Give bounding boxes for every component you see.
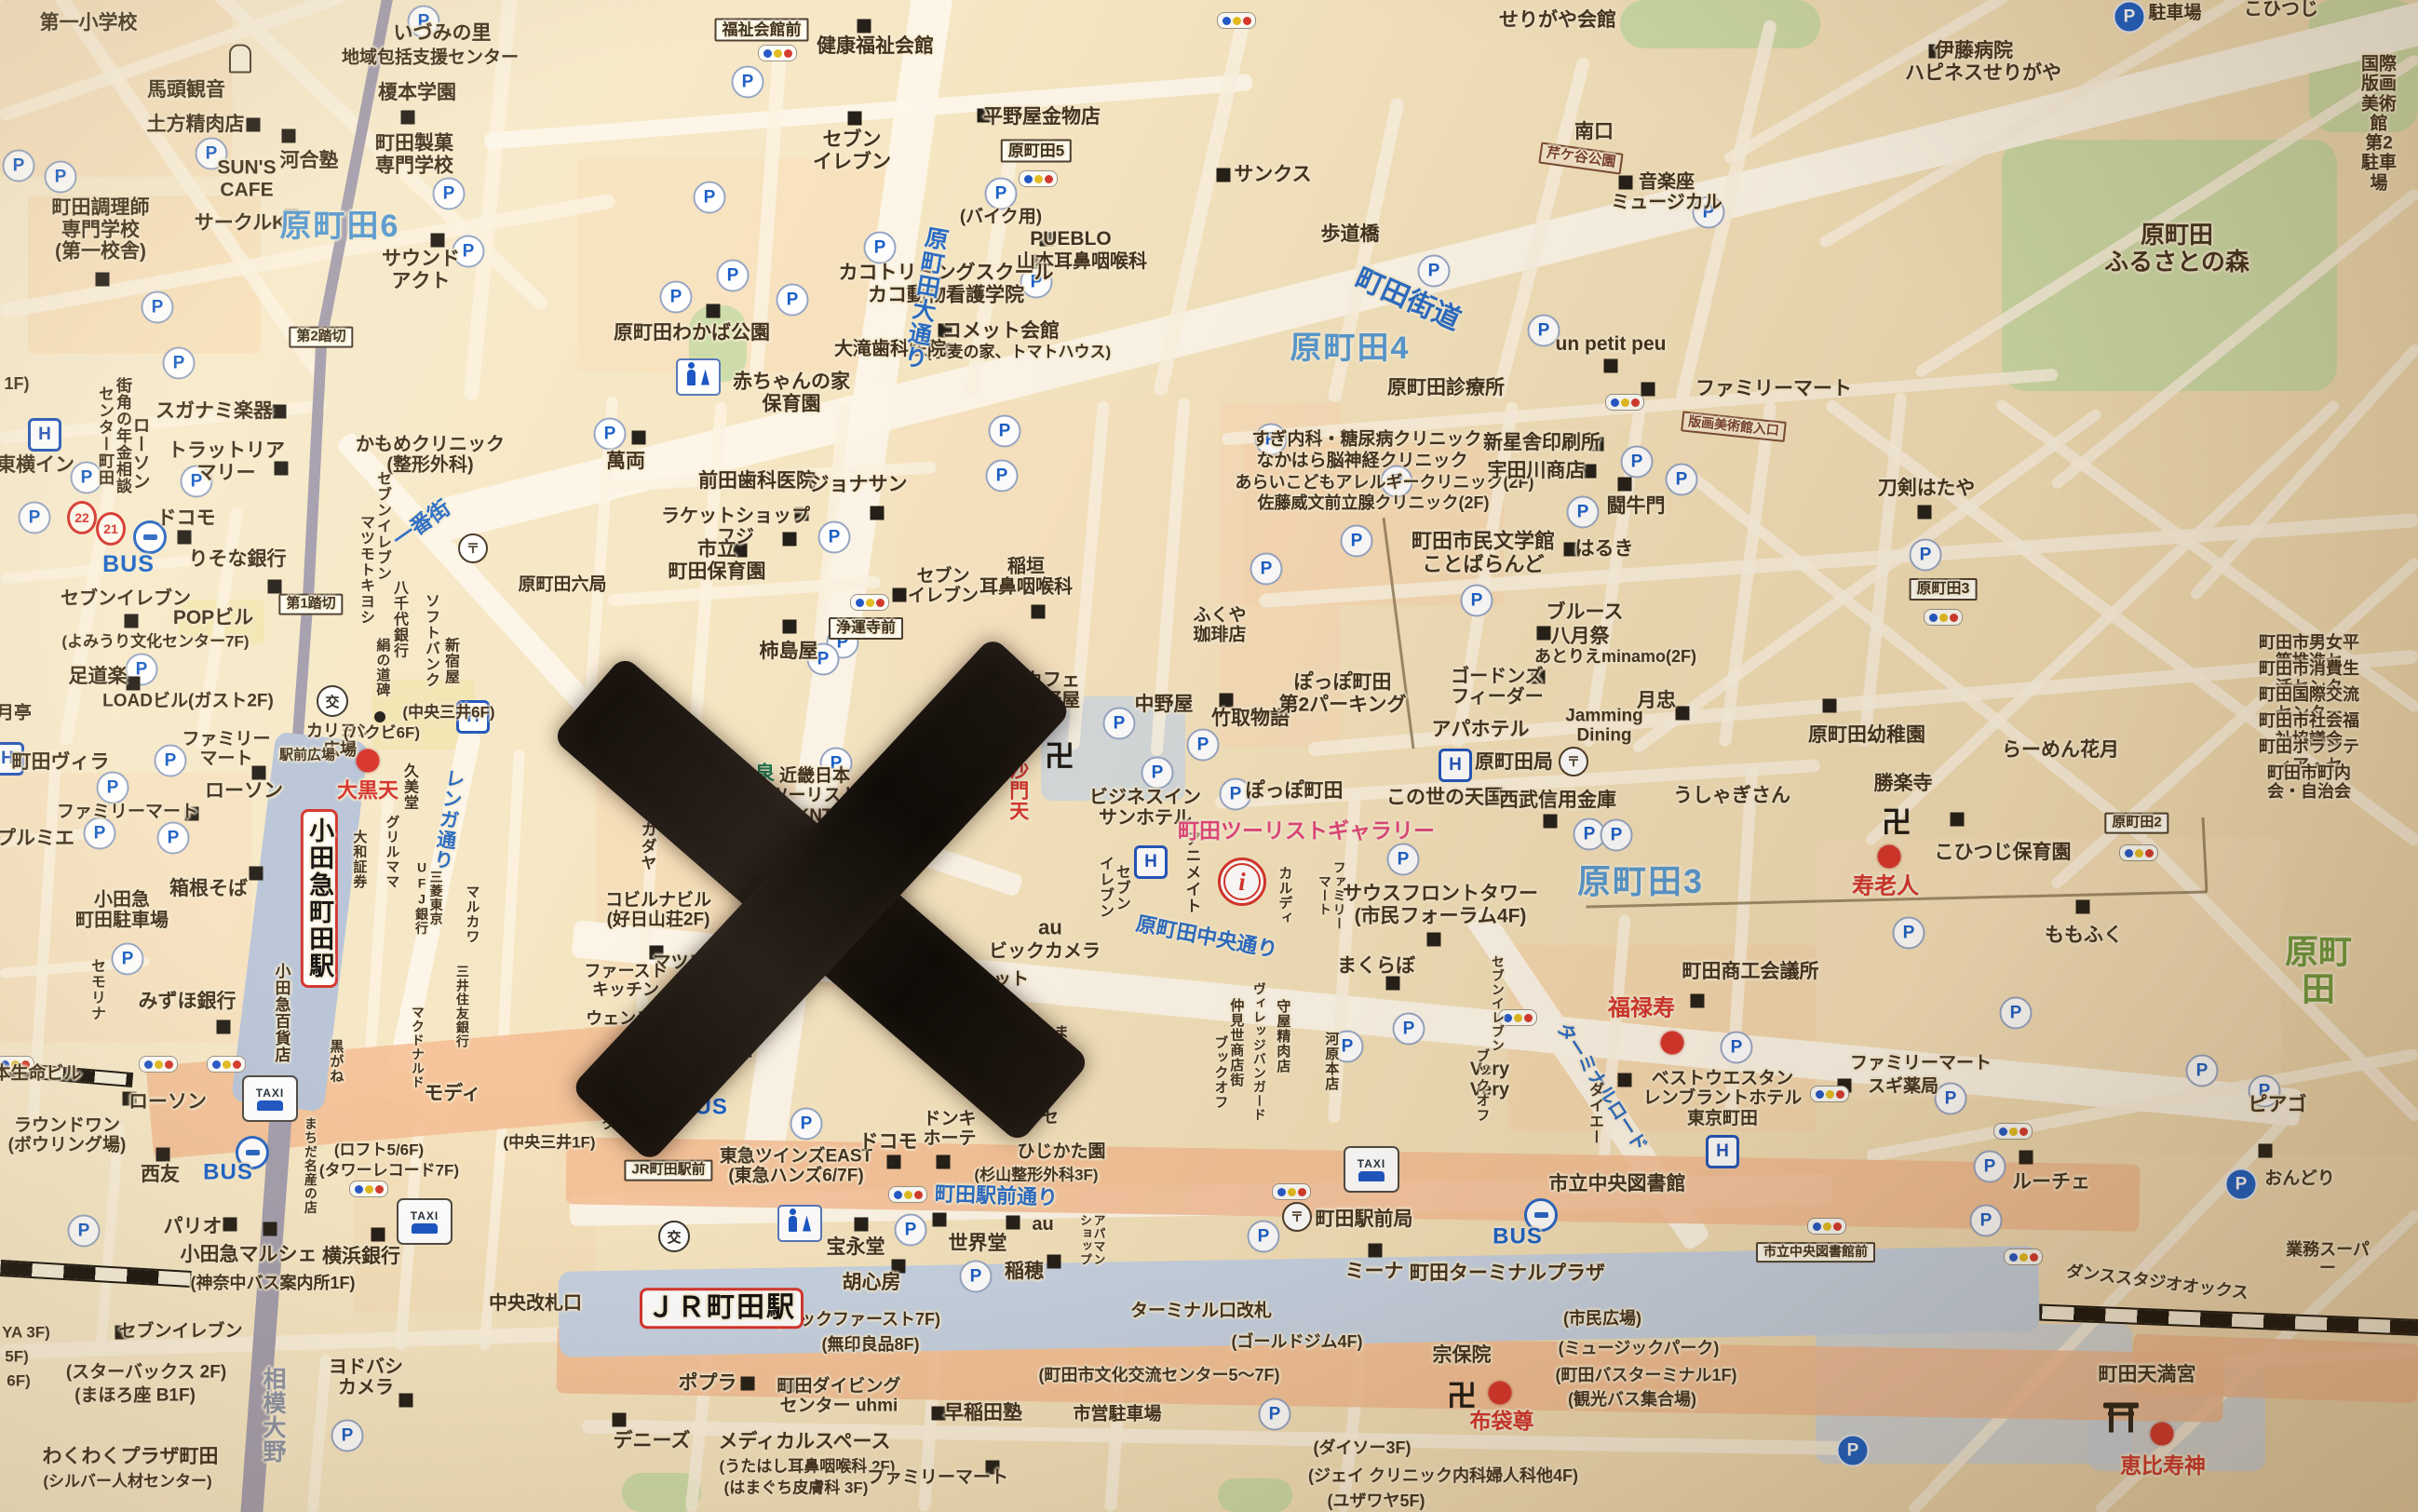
map-label: 1F) xyxy=(5,374,30,393)
map-label: セブン イレブン xyxy=(908,567,979,607)
building-marker xyxy=(1951,813,1965,827)
parking-icon: P xyxy=(732,66,764,99)
map-label: 福禄寿 xyxy=(1608,997,1675,1022)
building-marker xyxy=(2259,1144,2273,1158)
map-label: カルディ xyxy=(1277,866,1292,925)
park-area xyxy=(1218,1478,1292,1512)
map-label: 福祉会館前 xyxy=(715,18,809,41)
hotel-icon: H xyxy=(28,418,61,452)
map-label: 黒がね xyxy=(328,1039,344,1084)
parking-icon: P xyxy=(112,943,144,976)
parking-icon: P xyxy=(19,502,51,534)
parking-icon: P xyxy=(2000,997,2033,1030)
map-label: 刀剣はたや xyxy=(1878,478,1976,500)
map-label: (はまぐち皮膚科 3F) xyxy=(724,1478,869,1496)
map-label: 町田市民文学館 ことばらんど xyxy=(1412,530,1555,575)
map-label: ゴードンズ フィーダー xyxy=(1451,667,1544,709)
monument-dot xyxy=(374,711,385,722)
building-marker xyxy=(401,111,415,125)
map-label: 町田製菓 専門学校 xyxy=(375,132,453,176)
map-label: ファミリーマート xyxy=(57,802,198,821)
map-label: 仲見世商店街 xyxy=(1228,998,1244,1087)
map-label: ファースト キッチン xyxy=(584,962,667,999)
traffic-signal-icon xyxy=(207,1056,246,1073)
map-label: ファミリーマート xyxy=(1850,1053,1992,1073)
building-marker xyxy=(178,531,192,545)
hotel-icon: H xyxy=(1439,749,1472,782)
building-marker xyxy=(156,1148,170,1162)
police-box-icon: 交 xyxy=(317,685,348,717)
map-label: 大黒天 xyxy=(337,780,398,803)
map-label: 世界堂 xyxy=(949,1233,1007,1255)
map-label: ブックオフ xyxy=(1474,1048,1490,1123)
map-label: 西武信用金庫 xyxy=(1499,790,1616,812)
map-label: ピアゴ xyxy=(2249,1094,2307,1116)
map-label: (まほろ座 B1F) xyxy=(74,1385,196,1405)
traffic-signal-icon xyxy=(1807,1218,1846,1235)
parking-icon: P xyxy=(2186,1055,2219,1087)
map-label: ローソン xyxy=(128,1091,207,1114)
railway-line xyxy=(302,337,327,608)
building-marker xyxy=(1220,694,1234,708)
building-marker xyxy=(858,20,871,34)
map-label: ダイエー xyxy=(1586,1082,1602,1145)
parking-icon: P xyxy=(818,521,851,554)
parking-icon: P xyxy=(1341,525,1373,558)
map-label: 萬両 xyxy=(606,451,645,473)
map-label: 土方精肉店 xyxy=(147,114,245,136)
parking-icon: P xyxy=(84,817,116,850)
map-label: 本生命ビル xyxy=(0,1063,82,1083)
map-label: 闘牛門 xyxy=(1607,495,1666,518)
map-label: 原町田診療所 xyxy=(1387,377,1505,399)
map-label: サウンド アクト xyxy=(382,248,460,291)
map-label: 原町田6 xyxy=(280,209,400,244)
map-label: POPビル xyxy=(173,607,253,629)
map-label: マクドナルド xyxy=(410,1006,425,1089)
map-label: (神奈中バス案内所1F) xyxy=(191,1274,356,1292)
map-label: せりがや会館 xyxy=(1499,9,1616,32)
map-label: 胡心房 xyxy=(843,1272,901,1294)
restroom-icon xyxy=(676,358,721,396)
building-marker xyxy=(371,1228,385,1242)
building-marker xyxy=(1604,359,1618,373)
map-label: コメット会館 xyxy=(942,320,1060,343)
building-marker xyxy=(2020,1151,2033,1165)
parking-icon: P xyxy=(1387,844,1420,876)
map-label: 小田急 町田駐車場 xyxy=(75,890,169,932)
map-label: (バイク用) xyxy=(960,207,1042,226)
parking-icon: P xyxy=(1970,1205,2003,1237)
traffic-signal-icon xyxy=(850,594,889,611)
map-label: ぽっぽ町田 第2パーキング xyxy=(1278,671,1406,715)
parking-icon: P xyxy=(717,260,750,292)
bus-stop-number: 21 xyxy=(96,512,126,546)
map-label: プルミエ xyxy=(0,828,74,850)
map-label: 原町田5 xyxy=(1001,139,1072,162)
building-marker xyxy=(1823,699,1837,713)
map-label: 原町田 xyxy=(2269,934,2369,1009)
tourist-info-icon: i xyxy=(1218,857,1266,906)
parking-icon: P xyxy=(864,232,897,264)
building-marker xyxy=(247,118,261,132)
building-marker xyxy=(613,1413,627,1427)
parking-icon: P xyxy=(1935,1083,1967,1115)
traffic-signal-icon xyxy=(1810,1086,1849,1102)
map-label: 中央改札口 xyxy=(489,1293,582,1314)
building-marker xyxy=(893,588,907,602)
map-label: (市民広場) xyxy=(1563,1309,1641,1328)
building-marker xyxy=(268,580,282,594)
map-label: スギ薬局 xyxy=(1868,1076,1938,1096)
building-marker xyxy=(783,620,797,634)
parking-icon: P xyxy=(1418,255,1451,288)
map-label: ファミリーマート xyxy=(1695,378,1852,400)
map-label: まちだ名産の店 xyxy=(303,1117,317,1215)
map-label: セブンイレブン xyxy=(1490,955,1505,1053)
map-label: 市営駐車場 xyxy=(1073,1404,1161,1424)
map-label: ローソン xyxy=(205,780,283,803)
traffic-signal-icon xyxy=(1272,1183,1311,1200)
map-label: 河合塾 xyxy=(280,150,339,172)
map-label: 第1踏切 xyxy=(278,594,343,615)
traffic-signal-icon xyxy=(1019,170,1058,187)
map-label: デニーズ xyxy=(614,1430,691,1452)
map-label: 横浜銀行 xyxy=(322,1246,400,1268)
map-label: カコトリミングスクール カコ動物看護学院 xyxy=(839,262,1054,305)
map-label: 原町田3 xyxy=(1910,578,1978,601)
map-label: 町田ツーリストギャラリー xyxy=(1178,819,1435,844)
map-label: 町田ヴィラ xyxy=(12,751,110,774)
map-label: 原町田2 xyxy=(2104,813,2168,834)
machida-city-map: PPPPPPPPPPPPPPPPPPPPPPPPPPPPPPPPPPPPPPPP… xyxy=(0,0,2418,1512)
building-marker xyxy=(937,1155,951,1169)
map-label: (ハクビ6F) xyxy=(344,723,420,741)
parking-icon: P xyxy=(594,418,627,451)
jr-railway-line xyxy=(0,1260,192,1288)
map-label: 浄運寺前 xyxy=(829,617,903,640)
map-label: 伊藤病院 xyxy=(1935,40,2013,62)
map-label: 町田天満宮 xyxy=(2099,1364,2196,1386)
map-label: ひじかた園 xyxy=(1017,1141,1105,1161)
map-label: ファミリーマート xyxy=(867,1467,1008,1487)
parking-icon: P xyxy=(777,284,809,317)
map-label: (ロフト5/6F) xyxy=(334,1141,424,1158)
map-label: セブン イレブン xyxy=(1096,856,1129,919)
building-marker xyxy=(223,1218,237,1232)
map-label: 守屋精肉店 xyxy=(1275,999,1290,1073)
map-label: 柿島屋 xyxy=(760,641,818,663)
map-label: 佐藤威文前立腺クリニック(2F) xyxy=(1258,493,1490,512)
traffic-signal-icon xyxy=(2004,1249,2043,1265)
map-label: 三菱東京 UFJ銀行 xyxy=(413,860,442,936)
post-office-icon: 〒 xyxy=(458,533,488,563)
parking-icon: P xyxy=(142,291,174,324)
map-label: ヨドバシ カメラ xyxy=(329,1357,403,1399)
map-label: みずほ銀行 xyxy=(139,991,236,1013)
map-label: 竹取物語 xyxy=(1211,708,1290,730)
map-label: PUEBLO xyxy=(1030,228,1112,250)
traffic-signal-icon xyxy=(2119,844,2158,861)
map-label: ラウンドワン (ボウリング場) xyxy=(8,1116,127,1156)
map-label: らーめん花月 xyxy=(2002,739,2119,762)
traffic-signal-icon xyxy=(888,1186,927,1203)
map-label: 駅前広場 xyxy=(279,749,335,764)
traffic-signal-icon xyxy=(1605,394,1644,411)
map-label: (無印良品8F) xyxy=(822,1335,920,1354)
map-label: おんどり xyxy=(2264,1168,2334,1188)
map-label: 新宿屋 xyxy=(441,638,458,685)
temple-icon: 卍 xyxy=(1882,799,1911,842)
parking-icon: P xyxy=(1103,708,1136,740)
map-label: 宇田川商店 xyxy=(1488,460,1586,482)
map-label: メディカルスペース xyxy=(718,1431,890,1453)
building-marker xyxy=(1386,977,1400,991)
building-marker xyxy=(1427,933,1441,947)
map-label: セブンイレブン xyxy=(118,1321,242,1341)
traffic-signal-icon xyxy=(349,1181,388,1197)
parking-icon: P xyxy=(433,178,466,210)
map-label: ローソン xyxy=(129,416,149,491)
map-label: BUS xyxy=(102,551,155,577)
map-label: (中央三井1F) xyxy=(503,1133,595,1151)
map-label: 町田ダイビング センター uhmi xyxy=(777,1377,900,1417)
map-label: この世の天国 xyxy=(1386,787,1504,809)
map-label: 原町田わかば公園 xyxy=(614,322,770,344)
building-marker xyxy=(632,431,646,445)
parking-icon: P xyxy=(331,1420,364,1452)
building-marker xyxy=(1691,994,1705,1008)
map-label: (小麦の家、トマトハウス) xyxy=(926,343,1111,360)
parking-icon: P xyxy=(45,161,77,194)
road xyxy=(0,1326,596,1359)
map-label: 月亭 xyxy=(0,703,32,722)
building-marker xyxy=(431,234,445,248)
map-label: 原町田局 xyxy=(1475,751,1553,774)
map-label: (町田市文化交流センター5〜7F) xyxy=(1038,1366,1279,1384)
parking-icon: P xyxy=(1621,446,1654,479)
map-label: (ミュージックパーク) xyxy=(1559,1339,1720,1357)
parking-icon: P xyxy=(68,1215,101,1248)
map-label: うしゃぎさん xyxy=(1673,785,1790,807)
map-label: モディ xyxy=(424,1083,481,1105)
map-label: 稲穂 xyxy=(1005,1261,1044,1283)
map-label: アパマン ショップ xyxy=(1077,1214,1104,1266)
map-label: パリオ xyxy=(164,1216,223,1238)
map-label: アパホテル xyxy=(1432,719,1530,741)
building-marker xyxy=(1618,1073,1632,1087)
road xyxy=(306,1354,331,1512)
parking-icon: P xyxy=(1461,585,1493,617)
parking-icon: P xyxy=(3,150,35,182)
map-label: コビルナビル (好日山荘2F) xyxy=(605,891,711,931)
map-label: こひつじ xyxy=(2244,0,2318,20)
map-label: au xyxy=(1032,1214,1053,1235)
parking-icon: P xyxy=(1721,1032,1753,1064)
traffic-signal-icon xyxy=(1217,12,1256,29)
lucky-god-dot xyxy=(1878,845,1901,869)
map-label: 6F) xyxy=(7,1371,31,1389)
building-marker xyxy=(1641,383,1655,397)
map-label: 榎本学園 xyxy=(378,82,456,104)
parking-icon: P xyxy=(960,1261,993,1293)
district-block xyxy=(894,400,1201,680)
lucky-god-dot xyxy=(1489,1382,1512,1405)
parking-icon: P xyxy=(660,281,693,314)
parking-icon: P xyxy=(1141,757,1174,790)
restroom-icon xyxy=(777,1205,822,1242)
map-label: セブン イレブン xyxy=(813,128,891,172)
traffic-signal-icon xyxy=(139,1056,178,1073)
map-label: 町田調理師 専門学校 (第一校舎) xyxy=(52,197,150,263)
map-label: ふくや 珈琲店 xyxy=(1193,606,1246,646)
map-label: まくらぼ xyxy=(1337,955,1415,978)
road xyxy=(96,1122,125,1351)
map-label: サウスフロントタワー (市民フォーラム4F) xyxy=(1343,883,1538,926)
map-label: (町田バスターミナル1F) xyxy=(1556,1366,1737,1384)
map-label: はるき xyxy=(1575,538,1634,560)
building-marker xyxy=(855,1218,869,1232)
building-marker xyxy=(741,1377,755,1391)
map-label: なかはら脳神経クリニック xyxy=(1256,451,1467,470)
building-marker xyxy=(2076,900,2090,914)
map-label: (ゴールドジム4F) xyxy=(1232,1332,1363,1351)
building-marker xyxy=(1918,506,1932,520)
building-marker xyxy=(1047,1255,1061,1269)
map-label: 東急ツインズEAST (東急ハンズ6/7F) xyxy=(720,1147,872,1187)
map-label: 第一小学校 xyxy=(40,12,138,34)
parking-icon: P xyxy=(986,460,1019,493)
building-marker xyxy=(1369,1244,1383,1258)
bus-stop-number: 22 xyxy=(67,501,97,534)
map-label: 西友 xyxy=(141,1164,180,1186)
building-marker xyxy=(933,1213,947,1227)
map-label: ハピネスせりがや xyxy=(1905,62,2061,85)
map-label: ファミリー マート xyxy=(1317,861,1345,931)
map-label: (よみうり文化センター7F) xyxy=(61,632,249,650)
parking-icon: P xyxy=(97,772,129,804)
taxi-stand-icon: TAXI xyxy=(397,1198,453,1245)
map-label: ブルース xyxy=(1547,601,1624,624)
parking-icon: P xyxy=(1248,1221,1280,1253)
shrine-icon xyxy=(2103,1403,2139,1434)
building-marker xyxy=(848,112,862,126)
map-label: マルカワ xyxy=(464,884,480,944)
map-label: 中野屋 xyxy=(1135,694,1194,716)
map-label: りそな銀行 xyxy=(189,548,287,571)
parking-icon: P xyxy=(1259,1398,1291,1431)
map-label: すぎ内科・糖尿病クリニック xyxy=(1251,429,1481,449)
parking-icon: P xyxy=(790,1108,823,1141)
map-label: 業務スーパー xyxy=(2283,1240,2373,1277)
road xyxy=(497,749,525,1047)
map-label: 歩道橋 xyxy=(1321,223,1380,246)
lucky-god-dot xyxy=(1661,1032,1684,1055)
building-marker xyxy=(282,129,296,143)
map-label: 寿老人 xyxy=(1852,875,1919,900)
traffic-signal-icon xyxy=(1924,609,1963,626)
map-label: BUS xyxy=(1493,1225,1543,1250)
map-label: Jamming Dining xyxy=(1565,707,1642,747)
building-marker xyxy=(871,506,885,520)
map-label: JR町田駅前 xyxy=(624,1160,712,1181)
map-label: 早稲田塾 xyxy=(944,1402,1022,1424)
map-label: 絹の道碑 xyxy=(374,638,390,697)
map-label: 布袋尊 xyxy=(1470,1410,1534,1434)
map-label: 原町田3 xyxy=(1577,863,1704,900)
map-label: (ユザワヤ5F) xyxy=(1328,1492,1425,1510)
map-label: (ジェイ クリニック内科婦人科他4F) xyxy=(1308,1466,1578,1485)
kannon-stone-icon xyxy=(229,45,251,74)
building-marker xyxy=(1217,169,1231,182)
map-label: 市立 町田保育園 xyxy=(669,538,766,582)
parking-icon: P xyxy=(1974,1151,2006,1183)
parking-icon: P xyxy=(2225,1168,2258,1201)
hotel-icon: H xyxy=(1134,845,1168,879)
building-marker xyxy=(1544,815,1558,829)
map-label: グリルママ xyxy=(384,815,399,889)
map-label: ポプラ xyxy=(679,1372,737,1395)
map-label: YA 3F) xyxy=(2,1323,50,1341)
map-label: 町田駅前通り xyxy=(935,1182,1059,1209)
map-label: 稲垣 耳鼻咽喉科 xyxy=(979,557,1073,599)
map-label: 河原本店 xyxy=(1323,1032,1339,1091)
map-label: 小田急町田駅 xyxy=(301,809,338,988)
parking-icon: P xyxy=(1393,1013,1425,1046)
map-label: (スターバックス 2F) xyxy=(66,1362,226,1382)
map-label: 足道楽 xyxy=(69,666,128,688)
map-label: 地域包括支援センター xyxy=(342,47,519,67)
parking-icon: P xyxy=(157,822,190,855)
map-label: 第2踏切 xyxy=(289,327,353,348)
parking-icon: P xyxy=(694,182,726,214)
map-label: ファミリー マート xyxy=(182,730,270,770)
map-label: 宝永堂 xyxy=(827,1236,885,1259)
map-label: スガナミ楽器 xyxy=(155,400,273,423)
map-label: 町田ターミナルプラザ xyxy=(1410,1262,1605,1285)
map-label: (観光バス集合場) xyxy=(1568,1390,1696,1409)
traffic-signal-icon xyxy=(1993,1123,2033,1140)
map-label: サークルK xyxy=(195,212,287,235)
map-label: ももふく xyxy=(2045,925,2123,947)
map-label: ベストウエスタン レンブラントホテル 東京町田 xyxy=(1643,1069,1802,1128)
map-label: 三井住友銀行 xyxy=(454,965,469,1048)
map-label: マツモトキヨシ xyxy=(357,515,373,626)
parking-icon: P xyxy=(985,178,1018,210)
taxi-stand-icon: TAXI xyxy=(1344,1146,1399,1193)
map-label: 月忠 xyxy=(1637,690,1676,712)
parking-icon: P xyxy=(1601,819,1633,852)
parking-icon: P xyxy=(2114,1,2146,34)
lucky-god-dot xyxy=(2151,1423,2174,1446)
map-label: 音楽座 ミュージカル xyxy=(1611,172,1722,214)
temple-icon: 卍 xyxy=(1045,733,1074,776)
map-label: 原町田中央通り xyxy=(1134,912,1279,963)
map-label: LOADビル(ガスト2F) xyxy=(102,691,274,710)
map-label: 相模大野 xyxy=(260,1367,286,1464)
map-label: (中央三井6F) xyxy=(402,703,494,721)
map-label: 箱根そば xyxy=(169,878,248,900)
map-label: セブンイレブン xyxy=(61,588,191,609)
map-label: こひつじ保育園 xyxy=(1935,842,2072,864)
map-label: 原町田4 xyxy=(1290,331,1411,366)
map-label: 南口 xyxy=(1574,121,1614,143)
map-label: 町田商工会議所 xyxy=(1682,961,1819,983)
map-label: BUS xyxy=(203,1161,253,1186)
map-label: ルーチェ xyxy=(2012,1171,2090,1194)
building-marker xyxy=(1618,478,1632,492)
map-label: ソフトバンク xyxy=(422,593,439,688)
